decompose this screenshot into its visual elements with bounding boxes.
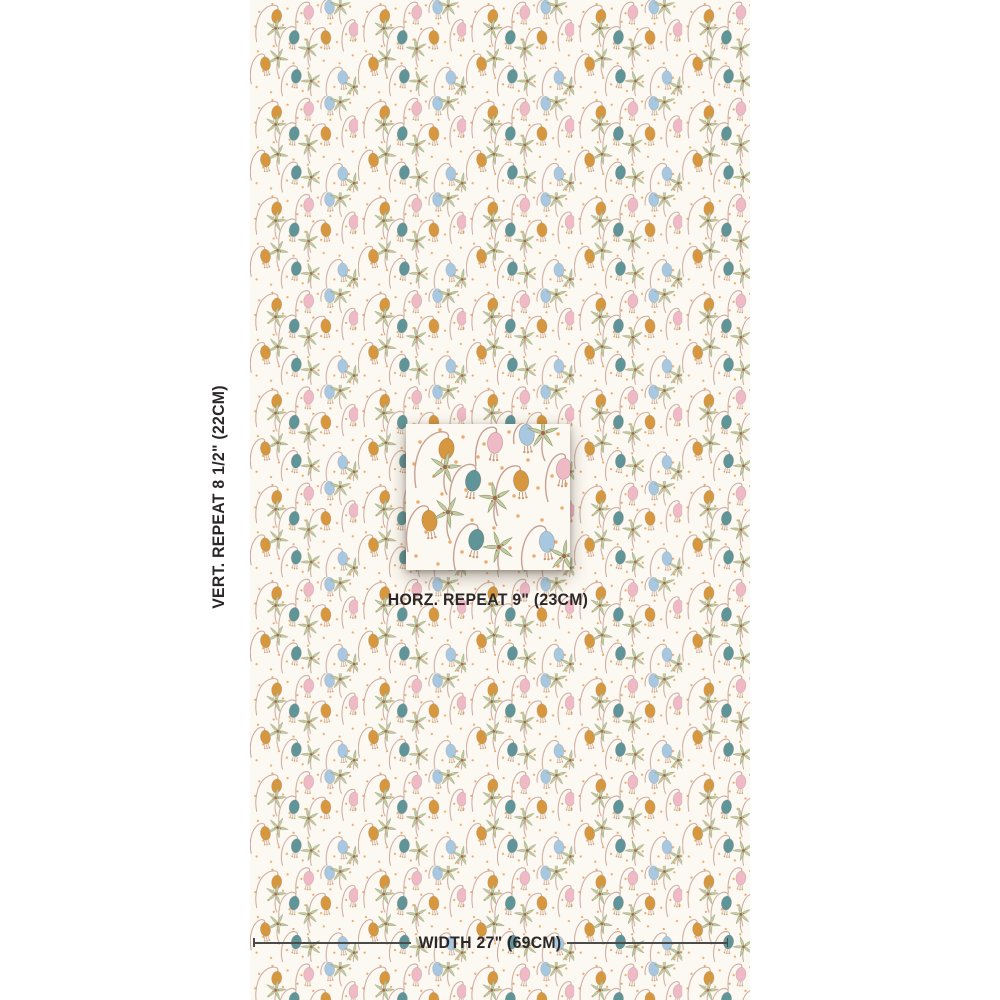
width-dimension-line-left xyxy=(253,942,411,944)
product-visualization: VERT. REPEAT 8 1/2" (22CM) HORZ. REPEAT … xyxy=(0,0,1000,1000)
repeat-inset xyxy=(406,424,570,570)
horizontal-repeat-label: HORZ. REPEAT 9" (23CM) xyxy=(388,590,588,610)
vertical-repeat-label: VERT. REPEAT 8 1/2" (22CM) xyxy=(209,385,229,609)
inset-pattern xyxy=(406,424,570,570)
width-dimension-line-right xyxy=(567,942,728,944)
width-label: WIDTH 27" (69CM) xyxy=(419,933,562,953)
repeat-inset-image xyxy=(406,424,570,570)
